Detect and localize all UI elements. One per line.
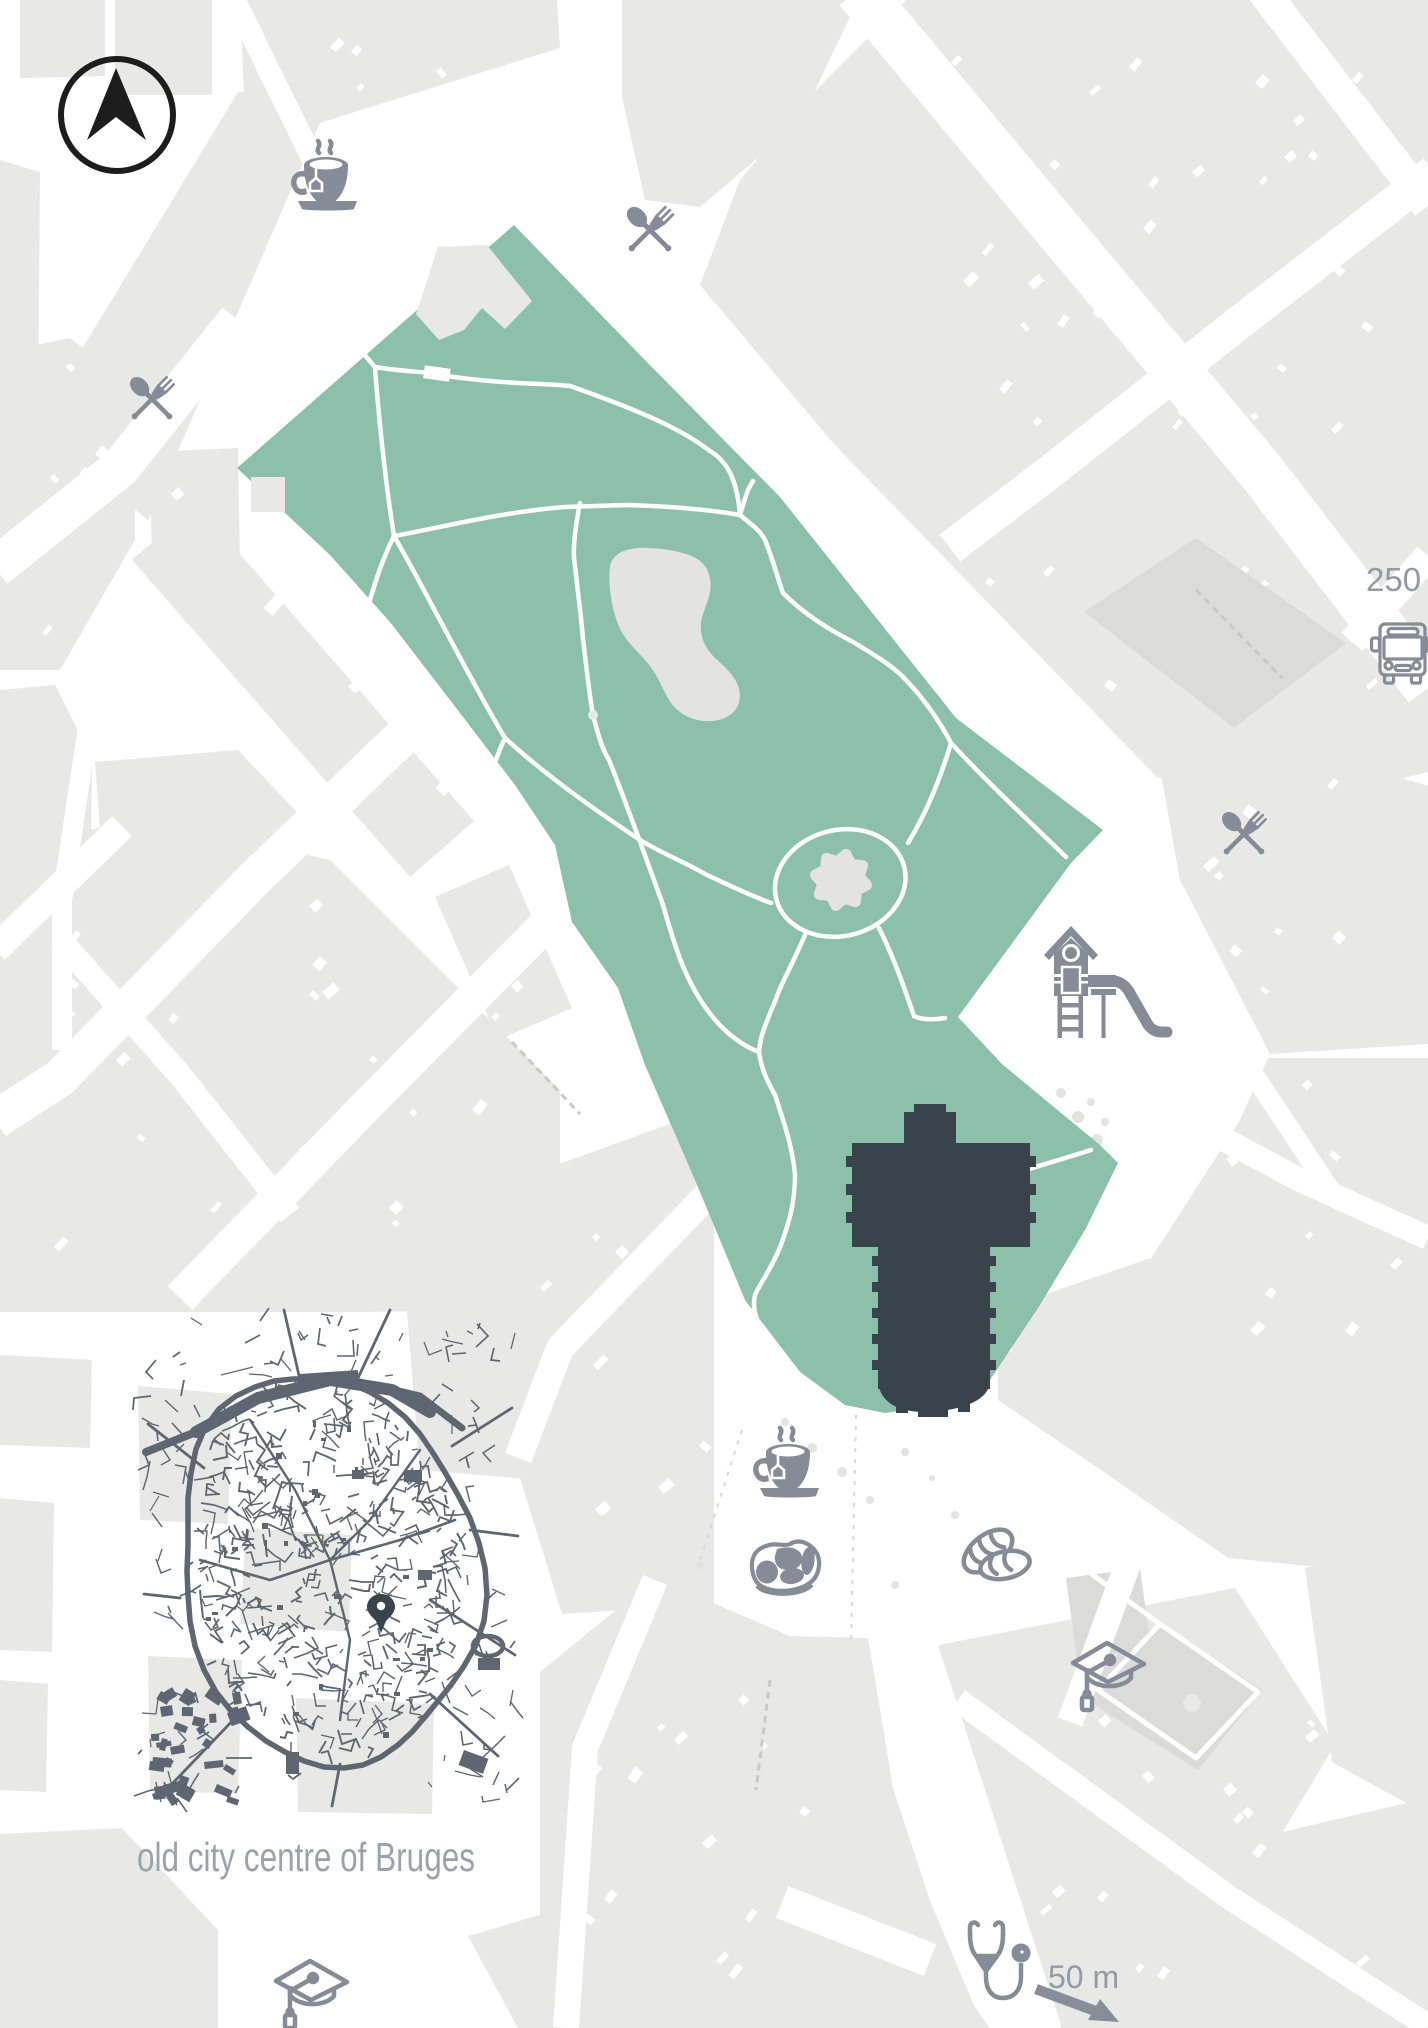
svg-text:old city centre of Bruges: old city centre of Bruges xyxy=(137,1834,475,1880)
svg-text:250 m: 250 m xyxy=(1366,561,1428,598)
svg-text:50 m: 50 m xyxy=(1048,1959,1119,1995)
